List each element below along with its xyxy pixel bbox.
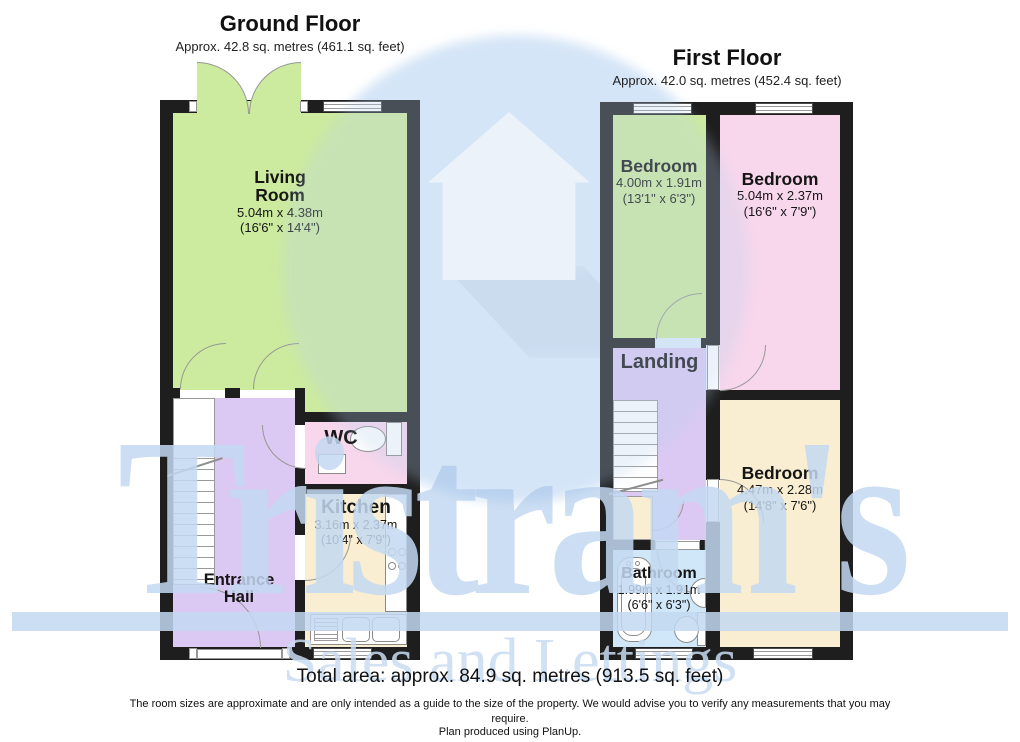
bathroom-window xyxy=(635,648,693,659)
room-metric: 5.04m x 2.37m xyxy=(720,188,840,203)
room-imperial: (10'4" x 7'9") xyxy=(305,533,407,548)
living-room-area-extension xyxy=(302,390,407,412)
room-metric: 1.99m x 1.91m xyxy=(608,583,710,598)
wall xyxy=(706,390,840,400)
wall xyxy=(613,338,655,348)
door-jamb xyxy=(300,101,308,112)
wall xyxy=(840,102,853,660)
bedroom3-label: Bedroom 4.47m x 2.28m (14'8" x 7'6") xyxy=(720,464,840,513)
room-name: Kitchen xyxy=(305,498,407,518)
disclaimer-text: The room sizes are approximate and are o… xyxy=(110,697,910,727)
staircase xyxy=(613,400,658,492)
wall xyxy=(613,540,655,550)
room-name: Bedroom xyxy=(720,170,840,188)
room-name: Entrance Hall xyxy=(178,572,300,607)
bedroom1-label: Bedroom 4.00m x 1.91m (13'1" x 6'3") xyxy=(608,157,710,206)
bedroom2-label: Bedroom 5.04m x 2.37m (16'6" x 7'9") xyxy=(720,170,840,219)
door-jamb xyxy=(282,648,290,659)
toilet-icon xyxy=(674,616,699,643)
bedroom3-door-leaf xyxy=(707,479,719,522)
room-imperial: (16'6" x 14'4") xyxy=(200,220,360,235)
bedroom3-area xyxy=(720,400,840,647)
door-jamb xyxy=(189,648,197,659)
ground-floor-area-text: Approx. 42.8 sq. metres (461.1 sq. feet) xyxy=(120,39,460,54)
wall xyxy=(295,468,305,535)
room-imperial: (13'1" x 6'3") xyxy=(608,191,710,206)
produced-by-text: Plan produced using PlanUp. xyxy=(0,725,1020,740)
hob-burner-icon xyxy=(388,562,396,570)
room-metric: 3.16m x 2.37m xyxy=(305,518,407,533)
room-imperial: (16'6" x 7'9") xyxy=(720,204,840,219)
wall xyxy=(706,115,720,345)
room-name: Bedroom xyxy=(720,464,840,482)
wall xyxy=(700,540,706,550)
floorplan-page: Ground Floor Approx. 42.8 sq. metres (46… xyxy=(0,0,1020,742)
bedroom3-window xyxy=(753,648,813,659)
door-jamb xyxy=(189,101,197,112)
first-floor-plan: Bedroom 4.00m x 1.91m (13'1" x 6'3") Bed… xyxy=(600,102,853,660)
wall xyxy=(225,388,240,398)
first-floor-area-text: Approx. 42.0 sq. metres (452.4 sq. feet) xyxy=(557,73,897,88)
stair-void xyxy=(173,398,215,460)
wall xyxy=(701,338,706,348)
total-area-text: Total area: approx. 84.9 sq. metres (913… xyxy=(0,666,1020,688)
room-name: Bathroom xyxy=(608,566,710,583)
wall xyxy=(160,100,173,660)
bathroom-door-leaf xyxy=(655,541,700,550)
ground-floor-title-text: Ground Floor xyxy=(120,12,460,36)
wc-label: WC xyxy=(310,428,372,449)
toilet-cistern-icon xyxy=(386,422,402,456)
bedroom2-door-leaf xyxy=(707,345,719,390)
first-floor-title: First Floor Approx. 42.0 sq. metres (452… xyxy=(557,46,897,88)
room-imperial: (6'6" x 6'3") xyxy=(608,598,710,613)
bathroom-label: Bathroom 1.99m x 1.91m (6'6" x 6'3") xyxy=(608,566,710,612)
sink-bowl-icon xyxy=(342,617,370,642)
room-name: WC xyxy=(310,428,372,449)
room-imperial: (14'8" x 7'6") xyxy=(720,498,840,513)
room-metric: 4.00m x 1.91m xyxy=(608,175,710,190)
living-room-label: Living Room 5.04m x 4.38m (16'6" x 14'4"… xyxy=(200,168,360,235)
room-name: Bedroom xyxy=(608,157,710,175)
first-floor-title-text: First Floor xyxy=(557,46,897,70)
wall xyxy=(173,388,180,398)
wall xyxy=(407,100,420,660)
hob-burner-icon xyxy=(398,562,406,570)
wall xyxy=(305,484,407,494)
wall xyxy=(706,400,720,480)
landing-label: Landing xyxy=(613,352,706,373)
drainer-icon xyxy=(314,618,338,641)
cupboard-area xyxy=(613,496,653,540)
hob-burner-icon xyxy=(398,548,406,556)
staircase xyxy=(173,458,215,585)
sink-bowl-icon xyxy=(372,617,400,642)
room-metric: 4.47m x 2.28m xyxy=(720,482,840,497)
front-door-leaf xyxy=(197,649,282,659)
room-name: Living Room xyxy=(200,168,360,205)
kitchen-label: Kitchen 3.16m x 2.37m (10'4" x 7'9") xyxy=(305,498,407,547)
kitchen-window xyxy=(313,648,372,659)
ground-floor-title: Ground Floor Approx. 42.8 sq. metres (46… xyxy=(120,12,460,54)
entrance-hall-label: Entrance Hall xyxy=(178,572,300,607)
watermark-background xyxy=(0,0,1020,742)
room-name: Landing xyxy=(613,352,706,373)
bedroom1-window xyxy=(633,103,692,114)
ground-floor-plan: Living Room 5.04m x 4.38m (16'6" x 14'4"… xyxy=(160,100,420,660)
bedroom2-window xyxy=(755,103,813,114)
room-metric: 5.04m x 4.38m xyxy=(200,205,360,220)
living-room-window xyxy=(323,101,382,112)
hob-burner-icon xyxy=(388,548,396,556)
wall xyxy=(295,412,407,422)
basin-icon xyxy=(318,454,346,474)
